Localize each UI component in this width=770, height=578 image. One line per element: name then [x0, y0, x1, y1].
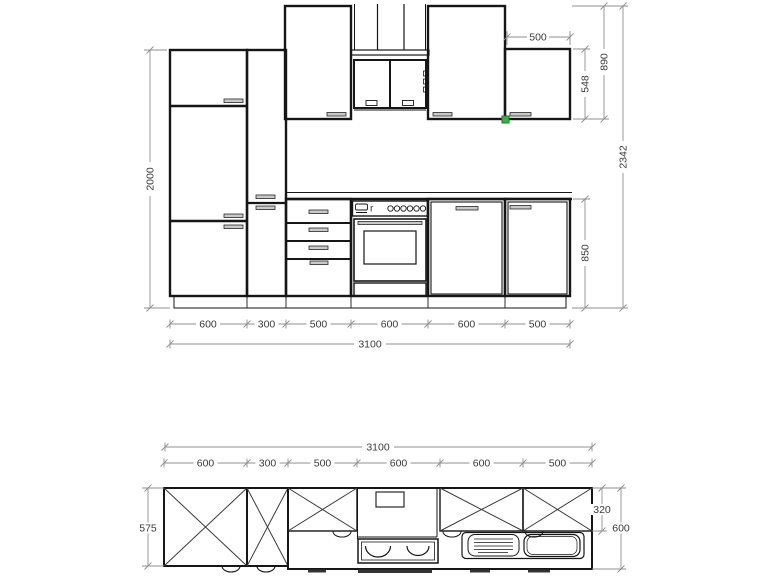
dim-label: 500 [529, 32, 547, 44]
dim-label: 2342 [618, 145, 630, 169]
door-handle [510, 113, 531, 117]
door-handle [333, 532, 351, 538]
dim-label: 500 [314, 458, 332, 470]
base-cabinet-600[interactable] [428, 199, 505, 296]
door-handle [510, 206, 531, 210]
wall-cabinet-left[interactable] [285, 6, 351, 119]
fridge-tall-unit[interactable] [170, 50, 247, 296]
door-handle [403, 101, 414, 106]
dim-label: 890 [599, 53, 611, 71]
dim-unit-widths-row [167, 320, 574, 329]
base-cabinet-500[interactable] [505, 199, 570, 296]
door-handle [256, 195, 275, 199]
door-handle [224, 214, 243, 218]
door-handle [456, 207, 478, 211]
dim-label: 300 [258, 319, 276, 331]
door-handle [327, 113, 346, 117]
dim-label: 850 [580, 244, 592, 262]
kitchen-drawing: r [0, 0, 770, 578]
dim-label: 3100 [358, 339, 382, 351]
drawing-sheet: r [0, 0, 770, 578]
plan-tall-unit-300[interactable] [247, 488, 288, 572]
oven-panel-label: r [370, 203, 374, 215]
dim-label: 500 [529, 319, 547, 331]
dim-label: 2000 [145, 167, 157, 191]
oven-window [364, 231, 416, 264]
selection-grip[interactable] [502, 116, 509, 123]
dim-label: 300 [259, 458, 277, 470]
door-handle [470, 570, 490, 573]
drawer-handle [309, 210, 328, 214]
oven-bottom-drawer [354, 283, 426, 296]
plan-wall-cabinet-600[interactable] [440, 488, 523, 537]
dim-label: 600 [197, 458, 215, 470]
plan-wall-cabinet-500[interactable] [288, 488, 357, 537]
oven-display [356, 204, 368, 210]
door-handle [443, 532, 461, 538]
hood-chimney-plan [376, 492, 404, 507]
drawer-handle [309, 246, 328, 250]
door-handle [224, 99, 243, 103]
dim-wall-cab-height-labelbox: 890 [598, 49, 611, 75]
door-handle [433, 113, 452, 117]
oven-knobs[interactable] [388, 206, 426, 211]
hood-canopy [351, 50, 429, 55]
oven-door [354, 219, 426, 281]
dim-label: 575 [139, 523, 157, 535]
cooker-hood[interactable] [351, 4, 429, 110]
dim-label: 548 [580, 75, 592, 93]
drawer-unit-500[interactable] [286, 199, 351, 296]
dim-label: 600 [458, 319, 476, 331]
dim-label: 500 [549, 458, 567, 470]
drawer-handle [310, 261, 328, 265]
dim-tall-height-labelbox: 2000 [144, 162, 157, 196]
drawer-handle [309, 228, 328, 232]
oven-handle [358, 570, 432, 574]
dim-label: 600 [473, 458, 491, 470]
dim-label: 600 [612, 523, 630, 535]
oven-door-handle [358, 222, 422, 225]
door-handle [528, 570, 550, 573]
plan-cooktop[interactable] [358, 539, 438, 563]
sink-drainer [468, 535, 519, 557]
wall-cabinet-right[interactable] [428, 6, 505, 119]
dim-total-height-labelbox: 2342 [617, 141, 630, 173]
dim-label: 600 [199, 319, 217, 331]
wall-cabinet-short[interactable] [505, 49, 570, 119]
dim-label: 320 [593, 504, 611, 516]
dim-label: 600 [381, 319, 399, 331]
plan-hood[interactable] [358, 488, 438, 539]
plan-view: 3100 600 300 500 600 600 500 575 [134, 442, 635, 574]
elevation-view: r [144, 3, 630, 351]
burner-arc [366, 546, 391, 557]
plan-tall-unit-600[interactable] [164, 488, 247, 572]
door-handle [366, 101, 377, 106]
dim-label: 3100 [366, 442, 390, 454]
tall-cabinet-300[interactable] [247, 50, 286, 296]
door-handle [308, 570, 326, 573]
door-handle [256, 206, 275, 210]
door-handle [224, 225, 243, 229]
dim-label: 500 [310, 319, 328, 331]
plan-sink[interactable] [462, 533, 584, 559]
oven[interactable]: r [351, 199, 428, 296]
sink-bowl [524, 535, 580, 557]
plan-dim-unit-widths-row [161, 459, 596, 468]
plan-front-handles [308, 570, 550, 574]
plan-wall-cabinet-500b[interactable] [523, 488, 592, 537]
dim-short-wall-cab-height-labelbox: 548 [579, 71, 592, 97]
burner-arc [407, 546, 429, 556]
plinth [174, 296, 566, 308]
dim-label: 600 [390, 458, 408, 470]
dim-base-height-labelbox: 850 [579, 240, 592, 266]
